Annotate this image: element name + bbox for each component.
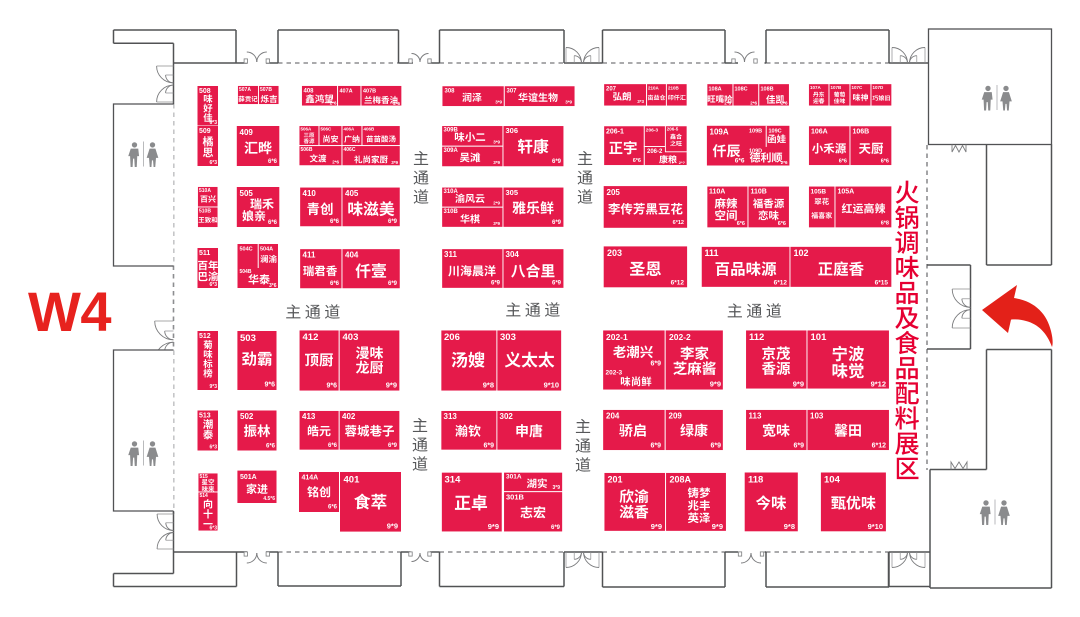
svg-text:6*12: 6*12	[774, 280, 788, 287]
svg-text:6*6: 6*6	[330, 219, 340, 225]
svg-text:107B: 107B	[831, 85, 843, 90]
svg-text:3*9: 3*9	[493, 160, 500, 165]
svg-text:407B: 407B	[363, 89, 376, 95]
svg-text:6*9: 6*9	[710, 443, 721, 450]
svg-text:506A: 506A	[301, 127, 313, 132]
svg-text:502: 502	[240, 412, 254, 421]
svg-text:202-2: 202-2	[669, 332, 691, 342]
svg-text:4.5*6: 4.5*6	[263, 496, 275, 502]
svg-text:6*9: 6*9	[551, 525, 561, 531]
svg-text:513: 513	[199, 413, 211, 420]
svg-text:109A: 109A	[710, 128, 729, 137]
svg-text:209: 209	[669, 412, 683, 421]
svg-text:6*6: 6*6	[633, 158, 641, 164]
svg-text:9*9: 9*9	[651, 522, 662, 531]
svg-text:6*9: 6*9	[650, 443, 661, 450]
svg-text:2*6: 2*6	[330, 101, 337, 106]
svg-text:210B: 210B	[668, 86, 680, 91]
svg-text:409: 409	[240, 128, 254, 137]
svg-text:506C: 506C	[321, 127, 333, 132]
svg-text:6*6: 6*6	[881, 159, 889, 165]
svg-text:201: 201	[608, 475, 623, 485]
svg-text:410: 410	[303, 189, 317, 198]
svg-text:3*3: 3*3	[637, 99, 644, 104]
svg-text:9*9: 9*9	[712, 522, 723, 531]
svg-text:411: 411	[303, 251, 316, 260]
svg-text:6*6: 6*6	[330, 281, 340, 287]
svg-text:506B: 506B	[301, 147, 313, 153]
svg-text:9*9: 9*9	[386, 381, 397, 390]
svg-text:403: 403	[343, 332, 359, 343]
svg-text:202-1: 202-1	[606, 332, 628, 342]
svg-text:9*9: 9*9	[488, 522, 499, 531]
svg-text:202-3: 202-3	[606, 370, 623, 377]
svg-text:412: 412	[303, 332, 319, 343]
svg-text:110A: 110A	[709, 189, 725, 196]
svg-text:3*9: 3*9	[565, 100, 572, 105]
svg-text:6*9: 6*9	[388, 443, 398, 449]
svg-text:3*9: 3*9	[493, 221, 500, 226]
svg-text:504C: 504C	[240, 247, 253, 253]
svg-text:108B: 108B	[761, 87, 774, 93]
svg-text:6*6: 6*6	[735, 158, 745, 165]
svg-text:9*3: 9*3	[209, 384, 217, 390]
svg-text:2*6: 2*6	[781, 101, 788, 106]
svg-text:9*10: 9*10	[868, 522, 883, 531]
svg-text:406A: 406A	[344, 127, 356, 132]
svg-text:406C: 406C	[344, 147, 356, 153]
svg-text:6*3: 6*3	[209, 445, 217, 451]
svg-text:6*6: 6*6	[328, 443, 338, 449]
svg-text:501A: 501A	[240, 474, 257, 481]
svg-text:6*9: 6*9	[491, 281, 501, 287]
svg-text:512: 512	[199, 333, 211, 340]
svg-text:505: 505	[240, 189, 254, 198]
svg-text:510B: 510B	[199, 209, 211, 215]
svg-text:6*3: 6*3	[209, 526, 217, 532]
svg-text:107D: 107D	[873, 85, 885, 90]
svg-text:6*9: 6*9	[388, 219, 398, 225]
svg-text:3*9: 3*9	[495, 100, 502, 105]
svg-text:306: 306	[506, 126, 519, 135]
svg-text:206-1: 206-1	[606, 129, 624, 136]
svg-text:3*9: 3*9	[552, 485, 560, 491]
svg-text:204: 204	[606, 412, 620, 421]
svg-text:6*3: 6*3	[209, 160, 217, 166]
svg-text:9*10: 9*10	[544, 381, 559, 390]
svg-text:511: 511	[199, 250, 210, 257]
svg-text:402: 402	[342, 412, 356, 421]
svg-text:3*6: 3*6	[269, 283, 277, 289]
svg-text:310B: 310B	[444, 209, 459, 215]
svg-text:405: 405	[345, 189, 359, 198]
svg-text:504B: 504B	[240, 269, 252, 275]
svg-text:112: 112	[749, 332, 764, 343]
svg-text:109B: 109B	[749, 129, 762, 135]
svg-text:107C: 107C	[852, 85, 864, 90]
svg-text:6*8: 6*8	[881, 221, 889, 227]
svg-text:2*9: 2*9	[493, 201, 500, 206]
svg-text:107A: 107A	[810, 85, 822, 90]
svg-text:206: 206	[444, 332, 460, 343]
svg-text:109C: 109C	[769, 129, 782, 135]
svg-text:105B: 105B	[811, 189, 827, 196]
svg-text:205: 205	[607, 188, 621, 197]
svg-text:309A: 309A	[444, 148, 459, 154]
svg-text:314: 314	[445, 475, 462, 486]
svg-text:106A: 106A	[811, 129, 828, 136]
svg-text:207: 207	[606, 87, 617, 93]
svg-text:9*8: 9*8	[784, 522, 795, 531]
svg-text:6*6: 6*6	[839, 159, 847, 165]
svg-text:105A: 105A	[838, 189, 855, 196]
svg-text:106B: 106B	[853, 129, 870, 136]
svg-text:6*9: 6*9	[483, 443, 494, 450]
svg-text:307: 307	[507, 89, 518, 95]
svg-text:514: 514	[200, 493, 209, 499]
svg-text:206-5: 206-5	[667, 127, 679, 132]
svg-text:408: 408	[304, 89, 315, 95]
svg-text:504A: 504A	[260, 247, 273, 253]
svg-text:3*9: 3*9	[391, 160, 398, 165]
svg-text:6*12: 6*12	[872, 443, 887, 450]
svg-text:407A: 407A	[340, 89, 353, 95]
svg-text:2*6: 2*6	[332, 160, 339, 165]
svg-text:6*9: 6*9	[388, 281, 398, 287]
svg-text:6*6: 6*6	[778, 221, 786, 227]
svg-text:110B: 110B	[751, 189, 767, 196]
svg-text:108A: 108A	[709, 87, 722, 93]
svg-text:308: 308	[445, 89, 456, 95]
svg-text:301A: 301A	[506, 474, 522, 481]
svg-text:508: 508	[199, 88, 211, 95]
svg-text:507B: 507B	[260, 87, 272, 93]
svg-text:507A: 507A	[239, 87, 251, 93]
svg-text:113: 113	[749, 412, 762, 421]
svg-text:9*6: 9*6	[264, 382, 275, 389]
svg-text:413: 413	[302, 412, 316, 421]
svg-text:210A: 210A	[648, 86, 660, 91]
svg-text:206-2: 206-2	[647, 149, 663, 155]
svg-text:2*6: 2*6	[750, 101, 757, 106]
svg-text:9*12: 9*12	[871, 380, 886, 389]
svg-text:406B: 406B	[364, 127, 376, 132]
svg-text:301B: 301B	[506, 493, 525, 502]
svg-text:303: 303	[500, 332, 516, 343]
svg-text:2*6: 2*6	[781, 160, 788, 165]
svg-text:6*3: 6*3	[209, 282, 217, 288]
svg-text:101: 101	[811, 332, 828, 343]
svg-text:2*?: 2*?	[679, 160, 686, 165]
svg-text:509: 509	[199, 128, 211, 135]
svg-text:6*12: 6*12	[671, 280, 685, 287]
svg-text:9*9: 9*9	[387, 522, 398, 531]
svg-text:6*3: 6*3	[209, 120, 217, 126]
svg-text:111: 111	[705, 248, 719, 258]
svg-text:9*9: 9*9	[710, 380, 721, 389]
svg-text:6*6: 6*6	[737, 221, 745, 227]
svg-text:6*9: 6*9	[552, 281, 562, 287]
svg-text:2*6: 2*6	[393, 101, 400, 106]
svg-text:6*15: 6*15	[875, 280, 889, 287]
svg-text:404: 404	[345, 251, 359, 260]
svg-text:206-3: 206-3	[646, 128, 659, 134]
svg-text:414A: 414A	[302, 475, 319, 482]
svg-text:2*6: 2*6	[724, 101, 731, 106]
svg-text:6*6: 6*6	[266, 444, 276, 450]
svg-text:304: 304	[506, 250, 520, 259]
svg-text:6*9: 6*9	[650, 361, 661, 368]
svg-text:9*9: 9*9	[793, 380, 804, 389]
svg-text:302: 302	[500, 412, 514, 421]
svg-text:103: 103	[810, 412, 824, 421]
svg-text:6*9: 6*9	[552, 220, 562, 226]
svg-text:W4: W4	[28, 280, 111, 343]
svg-text:309B: 309B	[444, 128, 459, 134]
svg-text:6*6: 6*6	[268, 220, 278, 226]
svg-text:102: 102	[794, 248, 809, 258]
svg-text:208A: 208A	[670, 475, 692, 485]
svg-text:305: 305	[506, 188, 519, 197]
svg-text:401: 401	[344, 475, 361, 486]
svg-text:6*9: 6*9	[552, 159, 562, 165]
svg-text:108C: 108C	[735, 87, 748, 93]
svg-text:311: 311	[444, 250, 457, 259]
svg-text:6*9: 6*9	[793, 443, 804, 450]
svg-text:6*6: 6*6	[268, 159, 278, 165]
svg-text:3*9: 3*9	[493, 140, 500, 145]
svg-text:104: 104	[824, 475, 841, 486]
svg-text:203: 203	[607, 248, 622, 258]
svg-text:6*6: 6*6	[328, 505, 338, 511]
svg-text:503: 503	[240, 333, 256, 344]
svg-text:9*6: 9*6	[326, 383, 337, 390]
svg-text:9*8: 9*8	[483, 381, 494, 390]
svg-text:510A: 510A	[199, 188, 211, 194]
svg-text:118: 118	[748, 475, 763, 486]
svg-text:6*12: 6*12	[673, 220, 684, 226]
svg-text:313: 313	[444, 412, 458, 421]
